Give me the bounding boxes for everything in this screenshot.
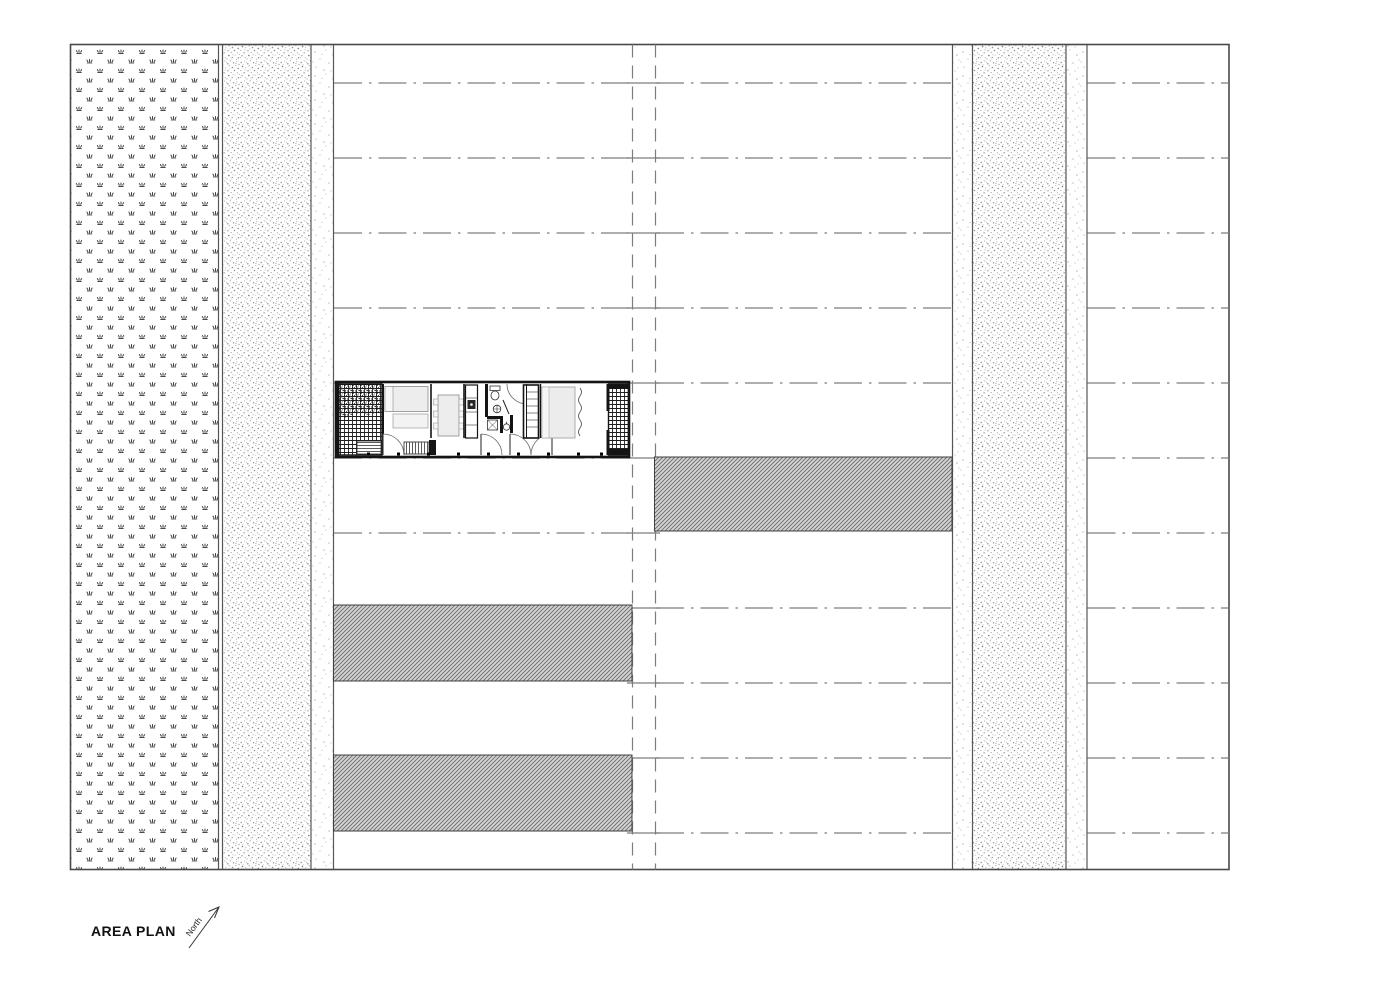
shower-drain xyxy=(493,405,501,413)
bath-wall-right xyxy=(510,415,513,433)
dwelling-unit-floor-plan xyxy=(336,382,629,457)
lot-lines-east-column xyxy=(1088,83,1230,833)
footprint-west-column-lower xyxy=(334,755,633,831)
bed-2-pillow xyxy=(542,387,549,438)
footprint-west-column-upper xyxy=(334,605,633,681)
dining-table xyxy=(438,395,459,436)
gravel-strip-east xyxy=(973,45,1067,870)
toilet xyxy=(490,386,500,400)
walk-strip-west xyxy=(311,45,334,870)
wall-stub xyxy=(429,440,436,455)
lot-lines-west-column xyxy=(334,83,631,533)
walk-strip-east-inner xyxy=(953,45,973,870)
gravel-strip-west xyxy=(223,45,312,870)
rear-deck xyxy=(607,384,629,455)
north-arrow: North xyxy=(184,907,219,948)
closet xyxy=(524,385,539,438)
dining-table-group xyxy=(434,395,464,436)
center-lane-dashed-lines xyxy=(633,45,656,870)
planting-patch xyxy=(339,385,380,418)
north-label: North xyxy=(184,915,204,938)
area-plan-drawing: AREA PLAN North xyxy=(0,0,1390,982)
footprint-center-column xyxy=(655,457,953,531)
deck-bench-slats xyxy=(357,441,381,454)
area-plan-title: AREA PLAN xyxy=(91,923,176,939)
area-plan-sheet: AREA PLAN North xyxy=(0,0,1390,982)
washer xyxy=(488,420,498,430)
dresser xyxy=(393,414,428,428)
bath-wall-left xyxy=(485,384,488,417)
planting-strip xyxy=(71,45,219,870)
bath-wall-mid-v xyxy=(500,416,503,433)
kitchen-counter xyxy=(466,385,478,438)
bed-1-pillow xyxy=(385,387,393,412)
slatted-bench-grate xyxy=(404,442,429,454)
walk-strip-east-outer xyxy=(1066,45,1087,870)
